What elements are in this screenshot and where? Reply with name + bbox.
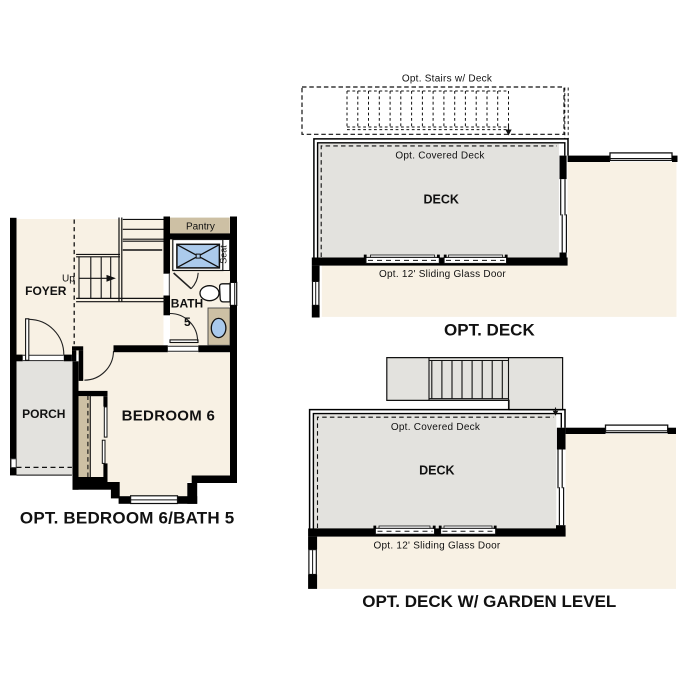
svg-text:PORCH: PORCH <box>22 407 65 421</box>
svg-text:OPT. DECK W/ GARDEN LEVEL: OPT. DECK W/ GARDEN LEVEL <box>362 592 616 611</box>
svg-text:Opt. Stairs w/ Deck: Opt. Stairs w/ Deck <box>402 74 493 85</box>
svg-text:5: 5 <box>184 315 191 329</box>
svg-text:Seat: Seat <box>219 245 229 264</box>
svg-text:DECK: DECK <box>419 464 454 478</box>
svg-text:BATH: BATH <box>171 297 203 311</box>
svg-text:BEDROOM 6: BEDROOM 6 <box>122 407 216 424</box>
svg-text:OPT. BEDROOM 6/BATH 5: OPT. BEDROOM 6/BATH 5 <box>20 508 235 527</box>
svg-text:OPT. DECK: OPT. DECK <box>444 320 535 339</box>
svg-text:Opt. Covered Deck: Opt. Covered Deck <box>391 422 481 433</box>
svg-text:Opt. 12' Sliding Glass Door: Opt. 12' Sliding Glass Door <box>373 541 500 552</box>
svg-text:FOYER: FOYER <box>25 284 67 298</box>
svg-text:Pantry: Pantry <box>186 221 215 232</box>
svg-text:DECK: DECK <box>423 193 458 207</box>
svg-text:Opt. 12' Sliding Glass Door: Opt. 12' Sliding Glass Door <box>379 269 506 280</box>
svg-text:Opt. Covered Deck: Opt. Covered Deck <box>395 150 485 161</box>
